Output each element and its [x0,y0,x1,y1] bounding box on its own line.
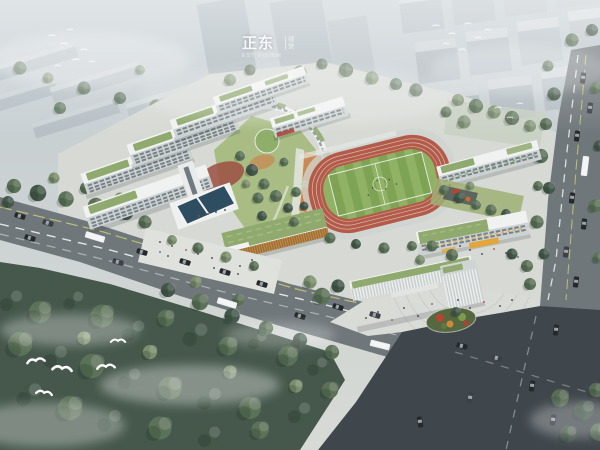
aerial-rendering: 正东 EST VISION 视 觉 [0,0,600,450]
play-structure [466,197,471,202]
rendering-canvas [0,0,600,450]
top-haze [0,0,600,135]
